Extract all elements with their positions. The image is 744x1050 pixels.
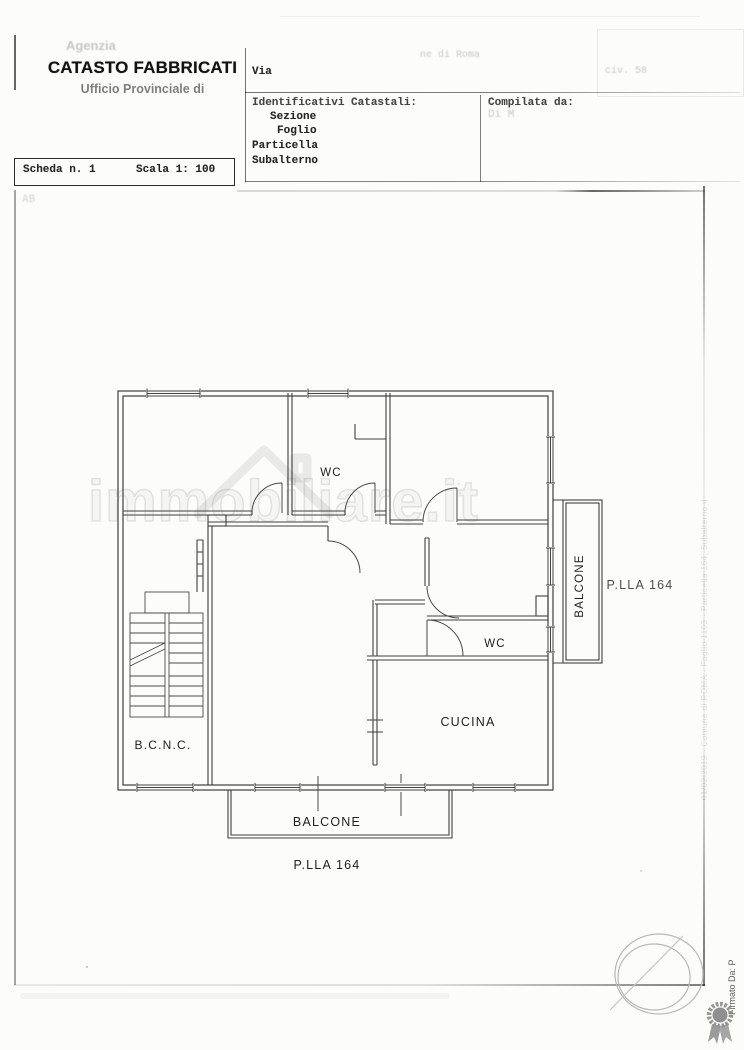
comune-faint-text: ne di Roma [420,50,480,61]
faint-note-text: AB [22,194,35,206]
document-subtitle: Ufficio Provinciale di [40,82,245,96]
compilata-heading: Compilata da: [488,97,574,109]
compilata-name-faint: Di M [488,109,514,121]
windows [136,388,555,792]
digital-seal-rosette-icon [704,1000,736,1048]
document-title: CATASTO FABBRICATI [40,58,245,78]
idbox-top-border [245,92,740,93]
label-bcnc: B.C.N.C. [135,738,192,752]
identificativi-foglio: Foglio [277,125,317,137]
label-plla-bottom: P.LLA 164 [294,858,361,872]
cadastral-floorplan-page: Agenzia CATASTO FABBRICATI Ufficio Provi… [0,0,744,1050]
scan-speck [86,966,88,968]
label-cucina: CUCINA [440,715,495,729]
scheda-number: Scheda n. 1 [23,164,96,176]
identificativi-subalterno: Subalterno [252,155,318,167]
door-arcs [252,483,463,816]
identificativi-heading: Identificativi Catastali: [252,97,417,109]
identificativi-sezione: Sezione [270,111,316,123]
scan-artifact-line [280,16,700,17]
scan-artifact-box [597,29,744,97]
staircase [130,592,203,717]
scala-value: Scala 1: 100 [136,164,215,176]
label-plla-right: P.LLA 164 [607,578,674,592]
label-wc-middle: WC [484,638,506,650]
idbox-bottom-border [245,181,740,182]
floorplan-drawing: WC WC CUCINA B.C.N.C. BALCONE BALCONE P.… [105,380,705,1040]
scheda-box: Scheda n. 1 Scala 1: 100 [14,158,235,186]
label-balcone-right: BALCONE [574,554,586,617]
scan-speck [640,870,642,872]
margin-side-text: 01/02/2019 - Comune di ROMA - Foglio 110… [700,330,709,800]
civ-number: civ. 58 [605,66,647,77]
frame-left-border [14,190,16,985]
agency-faint-text: Agenzia [66,38,116,53]
label-balcone-bottom: BALCONE [293,815,361,829]
room-labels: WC WC CUCINA B.C.N.C. BALCONE BALCONE P.… [135,467,674,872]
label-wc-top: WC [320,467,342,479]
via-label: Via [252,66,272,78]
identificativi-particella: Particella [252,140,318,152]
idbox-divider [480,95,481,182]
scan-speck [458,483,460,485]
left-edge-dark-segment [14,35,16,90]
exterior-walls [118,391,553,790]
balcony-bottom [228,790,452,838]
idbox-left-border [245,48,246,182]
stamp-circle [610,934,703,1014]
frame-top-border [237,190,705,192]
